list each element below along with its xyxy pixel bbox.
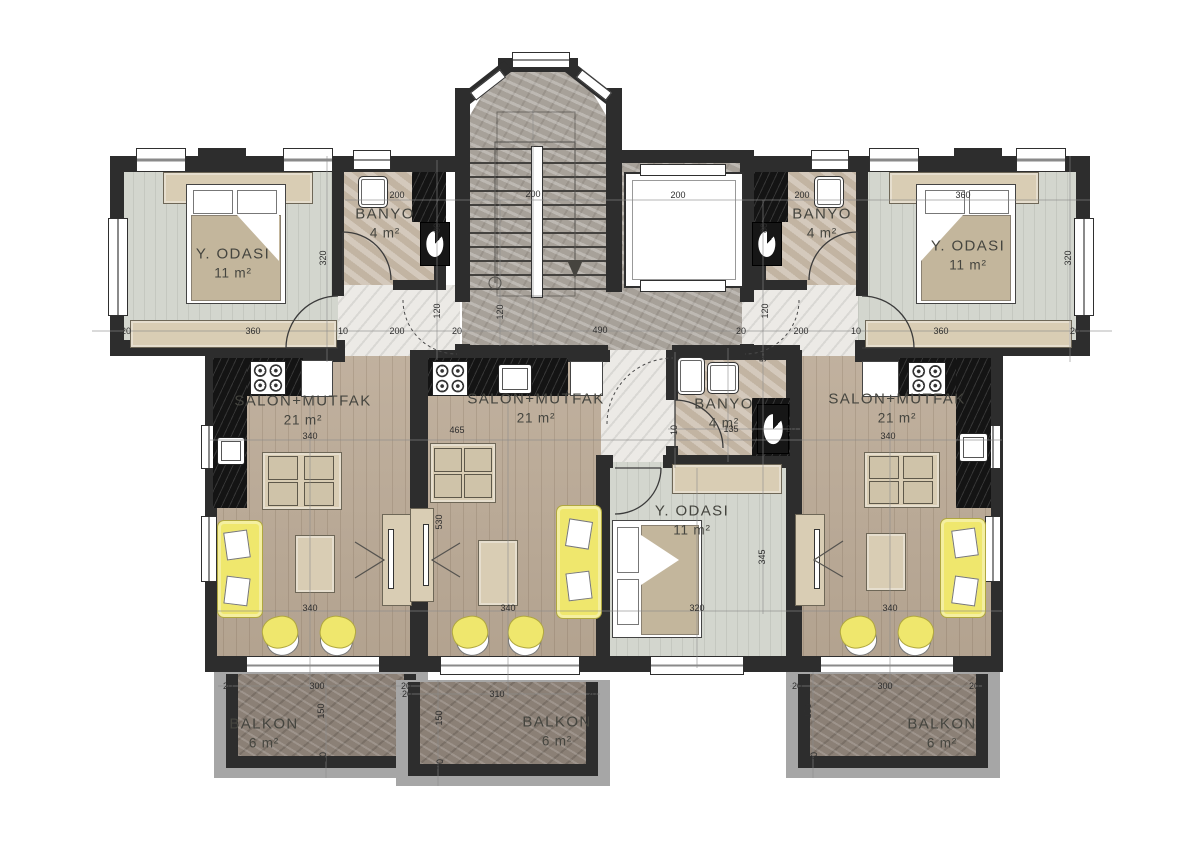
dimension-label: 310 <box>489 689 504 699</box>
room-label-bedroom-center: Y. ODASI11 m² <box>655 501 729 538</box>
dimension-label: 360 <box>955 190 970 200</box>
room-name: BALKON <box>907 715 976 732</box>
room-name: SALON+MUTFAK <box>828 390 965 407</box>
room-name: BALKON <box>522 713 591 730</box>
room-name: BANYO <box>792 205 852 222</box>
doors <box>286 232 914 514</box>
dimension-label: 10 <box>669 425 679 435</box>
dimension-label: 20 <box>435 759 445 769</box>
room-name: Y. ODASI <box>196 245 270 262</box>
dimension-label: 20 <box>786 424 796 434</box>
room-area: 21 m² <box>234 411 371 429</box>
dimension-label: 200 <box>525 189 540 199</box>
room-area: 11 m² <box>196 264 270 282</box>
dimension-label: 340 <box>302 603 317 613</box>
room-name: Y. ODASI <box>655 502 729 519</box>
dimension-label: 200 <box>670 190 685 200</box>
dimension-label: 20 <box>587 689 597 699</box>
dimension-label: 150 <box>434 710 444 725</box>
room-area: 6 m² <box>229 734 298 752</box>
stair-walk-line <box>489 112 583 296</box>
dimension-label: 50 <box>758 352 768 362</box>
dimension-label: 300 <box>309 681 324 691</box>
room-name: BANYO <box>355 205 415 222</box>
dimension-label: 20 <box>223 681 233 691</box>
room-area: 11 m² <box>655 521 729 539</box>
dimension-label: 200 <box>389 190 404 200</box>
room-label-bedroom-left: Y. ODASI11 m² <box>196 244 270 281</box>
room-name: SALON+MUTFAK <box>234 392 371 409</box>
tv-angle-marks <box>355 541 843 578</box>
dimension-label: 150 <box>316 703 326 718</box>
room-area: 4 m² <box>792 224 852 242</box>
dimension-label: 320 <box>318 250 328 265</box>
dimension-label: 200 <box>389 326 404 336</box>
room-label-salon-right: SALON+MUTFAK21 m² <box>828 389 965 426</box>
room-area: 21 m² <box>467 409 604 427</box>
room-name: SALON+MUTFAK <box>467 390 604 407</box>
room-area: 21 m² <box>828 409 965 427</box>
dimension-label: 20 <box>452 326 462 336</box>
dimension-label: 340 <box>882 603 897 613</box>
floor-plan: Y. ODASI11 m²BANYO4 m²Y. ODASI11 m²BANYO… <box>0 0 1200 848</box>
dimension-label: 465 <box>449 425 464 435</box>
room-label-balkon-center: BALKON6 m² <box>522 712 591 749</box>
dimension-label: 340 <box>880 431 895 441</box>
room-label-banyo-left: BANYO4 m² <box>355 204 415 241</box>
dimension-label: 20 <box>736 326 746 336</box>
dimension-label: 490 <box>592 325 607 335</box>
dimension-label: 530 <box>434 514 444 529</box>
dimension-label: 340 <box>500 603 515 613</box>
room-name: BANYO <box>694 395 754 412</box>
dimension-label: 80 <box>759 223 769 233</box>
room-label-balkon-right: BALKON6 m² <box>907 714 976 751</box>
dimension-label: 345 <box>757 549 767 564</box>
dimension-label: 10 <box>338 326 348 336</box>
dimension-label: 320 <box>689 603 704 613</box>
dimension-label: 10 <box>851 326 861 336</box>
room-label-salon-center: SALON+MUTFAK21 m² <box>467 389 604 426</box>
room-label-banyo-right: BANYO4 m² <box>792 204 852 241</box>
dimension-label: 120 <box>760 303 770 318</box>
room-area: 11 m² <box>931 256 1005 274</box>
dimension-label: 150 <box>803 703 813 718</box>
room-name: BALKON <box>229 715 298 732</box>
dimension-label: 135 <box>723 424 738 434</box>
dimension-label: 20 <box>402 689 412 699</box>
dimension-lines <box>92 110 1112 786</box>
stair-down-arrow-icon <box>567 260 583 278</box>
dimension-label: 200 <box>794 190 809 200</box>
dimension-label: 80 <box>432 223 442 233</box>
room-area: 4 m² <box>355 224 415 242</box>
room-label-bedroom-right: Y. ODASI11 m² <box>931 236 1005 273</box>
dimension-label: 20 <box>792 681 802 691</box>
dimension-label: 20 <box>809 752 819 762</box>
dimension-label: 120 <box>432 303 442 318</box>
dimension-label: 120 <box>495 304 505 319</box>
room-area: 6 m² <box>907 734 976 752</box>
dimension-label: 300 <box>877 681 892 691</box>
dimension-label: 20 <box>318 752 328 762</box>
dimension-label: 20 <box>121 326 131 336</box>
room-area: 6 m² <box>522 732 591 750</box>
dimension-label: 20 <box>969 681 979 691</box>
dimension-label: 320 <box>1063 250 1073 265</box>
room-name: Y. ODASI <box>931 237 1005 254</box>
dimension-label: 340 <box>302 431 317 441</box>
dimension-label: 360 <box>245 326 260 336</box>
dimension-label: 20 <box>1070 326 1080 336</box>
room-label-balkon-left: BALKON6 m² <box>229 714 298 751</box>
dimension-label: 200 <box>793 326 808 336</box>
room-label-salon-left: SALON+MUTFAK21 m² <box>234 391 371 428</box>
dimension-label: 360 <box>933 326 948 336</box>
